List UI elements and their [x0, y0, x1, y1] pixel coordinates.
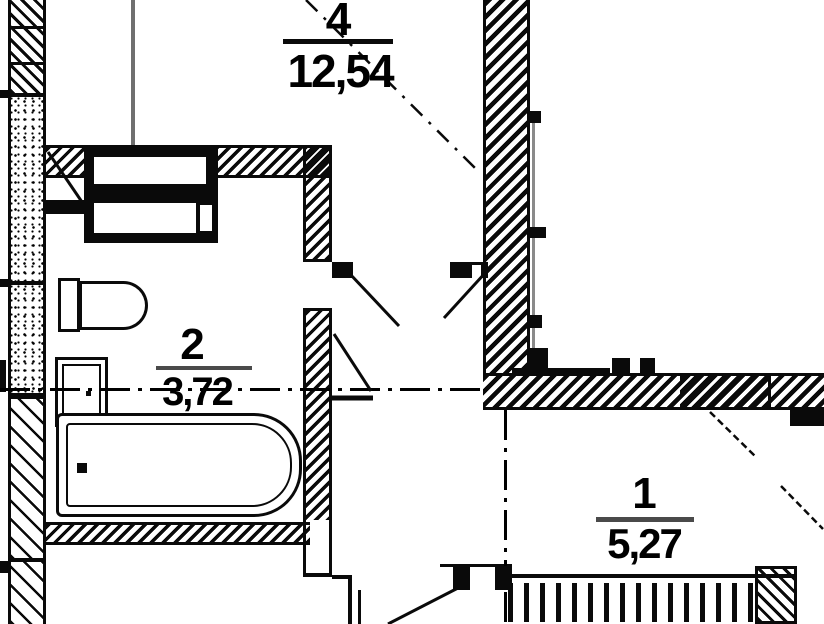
room1-area: 5,27	[590, 523, 698, 565]
jamb-mark	[512, 368, 610, 373]
sink-drain-dot	[86, 391, 91, 396]
bathtub	[56, 413, 302, 517]
jamb-mark	[612, 358, 630, 376]
door-leaf-bathroom	[350, 274, 399, 326]
wall-face-tick	[0, 279, 8, 287]
axis-line-vertical	[504, 410, 507, 566]
bearing-wall-dense-section	[680, 376, 768, 407]
wall-break-line	[768, 373, 771, 410]
door-leaf-corridor	[444, 272, 486, 318]
wall-insulation-fill	[11, 285, 43, 393]
wall-masonry-hatch-top	[11, 0, 43, 93]
bathroom-wall-bottom	[46, 522, 310, 545]
room4-area: 12,54	[276, 48, 404, 94]
radiator-end-cap	[755, 566, 797, 624]
door-leaf-wc	[334, 334, 371, 391]
wall-masonry-hatch-bottom	[11, 399, 43, 558]
vent-cell-top	[94, 157, 206, 184]
wall-masonry-hatch-bottom	[11, 562, 43, 624]
bathroom-wall-right-lower	[303, 308, 332, 520]
ventilation-shaft	[84, 148, 218, 243]
exterior-wall-left	[8, 0, 46, 624]
bathroom-wall-right-upper	[303, 145, 332, 262]
radiator-sill	[508, 583, 755, 622]
room2-area: 3,72	[142, 372, 252, 412]
door-leaf-room1-a	[710, 412, 757, 458]
sink-basin	[62, 364, 101, 420]
bearing-wall-vertical	[483, 0, 530, 375]
wall-face-tick	[0, 90, 8, 98]
room1-number: 1	[614, 472, 674, 516]
toilet-bowl	[80, 281, 148, 330]
wall-face-tick	[529, 315, 542, 328]
wall-end-step	[790, 407, 824, 426]
toilet-tank	[58, 278, 80, 332]
radiator-top-line	[505, 574, 797, 578]
wall-face-tick	[0, 561, 8, 573]
jamb-mark	[640, 358, 655, 376]
room4-fraction-bar	[283, 39, 393, 44]
door-jamb-block	[450, 262, 488, 278]
vent-cell-notch	[200, 205, 212, 231]
door-leaf-bottom	[388, 588, 458, 624]
door-leaf-room1-b	[781, 486, 823, 529]
vent-cell-bottom	[94, 203, 196, 233]
bathtub-drain	[77, 463, 87, 473]
floor-plan-canvas: 4 12,54 2 3,72 1 5,27	[0, 0, 824, 624]
door-jamb-block	[453, 566, 470, 590]
bathtub-inner-rim	[66, 423, 292, 507]
wall-face-tick	[529, 111, 541, 123]
bearing-wall-horizontal	[483, 373, 824, 410]
room2-number: 2	[162, 323, 222, 367]
axis-line-vertical	[504, 592, 507, 624]
wall-insulation-fill	[11, 97, 43, 281]
wall-layer-divider	[11, 62, 43, 65]
room4-partition-line	[131, 0, 135, 145]
door-jamb-gap	[472, 265, 481, 278]
room4-number: 4	[318, 0, 358, 42]
wall-jog-vertical	[348, 575, 352, 624]
door-jamb-block	[332, 262, 353, 278]
partition-line	[358, 590, 361, 624]
wall-layer-divider	[11, 26, 43, 29]
wall-face-tick	[527, 227, 546, 238]
vent-side-bar	[46, 200, 84, 214]
